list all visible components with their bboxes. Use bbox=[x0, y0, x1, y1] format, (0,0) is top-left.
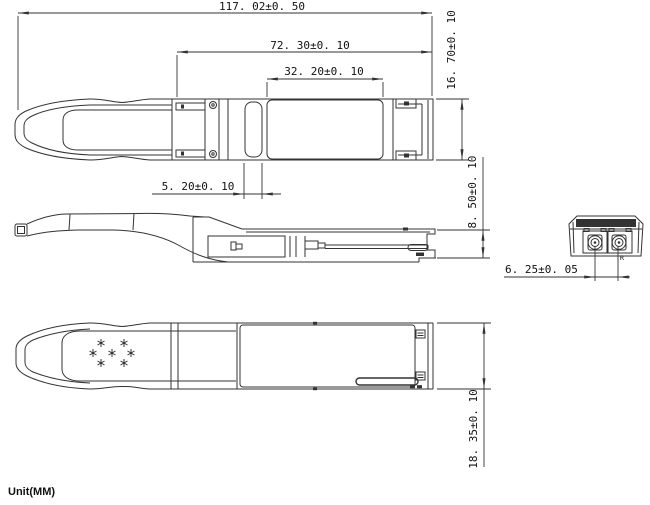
label-recess bbox=[267, 100, 383, 159]
dimension-port-pitch: 6. 25±0. 05 bbox=[504, 246, 630, 281]
screw-bottom bbox=[210, 151, 217, 158]
pcb-edge-bottom bbox=[356, 323, 428, 389]
side-view bbox=[15, 213, 436, 262]
screw-top bbox=[210, 102, 217, 109]
pull-tab-bottom bbox=[16, 323, 433, 389]
tab-bracket bbox=[172, 99, 205, 160]
dimension-overall-length: 117. 02±0. 50 bbox=[18, 0, 432, 110]
anti-static-marks bbox=[90, 339, 135, 367]
slider-latch bbox=[208, 236, 325, 257]
optical-port-right bbox=[608, 229, 632, 254]
latch-slot bbox=[245, 102, 262, 157]
dimension-module-width: 16. 70±0. 10 bbox=[436, 10, 469, 160]
top-view bbox=[15, 99, 433, 160]
dim-overall-length-text: 117. 02±0. 50 bbox=[219, 0, 305, 13]
dim-housing-length-text: 72. 30±0. 10 bbox=[270, 39, 349, 52]
rear-bracket bbox=[393, 99, 428, 160]
bottom-view bbox=[16, 322, 433, 390]
pcb-edge-side bbox=[325, 245, 428, 257]
dim-overall-height-text: 18. 35±0. 10 bbox=[467, 389, 480, 468]
dim-module-width-text: 16. 70±0. 10 bbox=[445, 10, 458, 89]
housing-side bbox=[193, 217, 436, 262]
pull-tab-side bbox=[15, 213, 228, 262]
dimension-label-area-length: 32. 20±0. 10 bbox=[267, 65, 383, 97]
dimension-latch-slot-width: 5. 20±0. 10 bbox=[152, 163, 281, 199]
dim-label-area-length-text: 32. 20±0. 10 bbox=[284, 65, 363, 78]
dimension-overall-height: 18. 35±0. 10 bbox=[437, 323, 491, 469]
unit-label: Unit(MM) bbox=[8, 486, 55, 498]
dim-module-height-text: 8. 50±0. 10 bbox=[466, 156, 479, 229]
hatched-top-band bbox=[576, 219, 636, 227]
transceiver-drawing: R 117. 02±0. 50 72. 30±0. 10 32. 20±0. 1… bbox=[0, 0, 650, 505]
end-view: R bbox=[569, 216, 643, 262]
dim-port-pitch-text: 6. 25±0. 05 bbox=[505, 263, 578, 276]
engineering-drawing-page: R 117. 02±0. 50 72. 30±0. 10 32. 20±0. 1… bbox=[0, 0, 650, 505]
receive-port-label: R bbox=[620, 254, 624, 262]
bottom-shell bbox=[62, 322, 415, 390]
dimension-module-height: 8. 50±0. 10 bbox=[437, 156, 490, 258]
dim-latch-slot-width-text: 5. 20±0. 10 bbox=[162, 180, 235, 193]
